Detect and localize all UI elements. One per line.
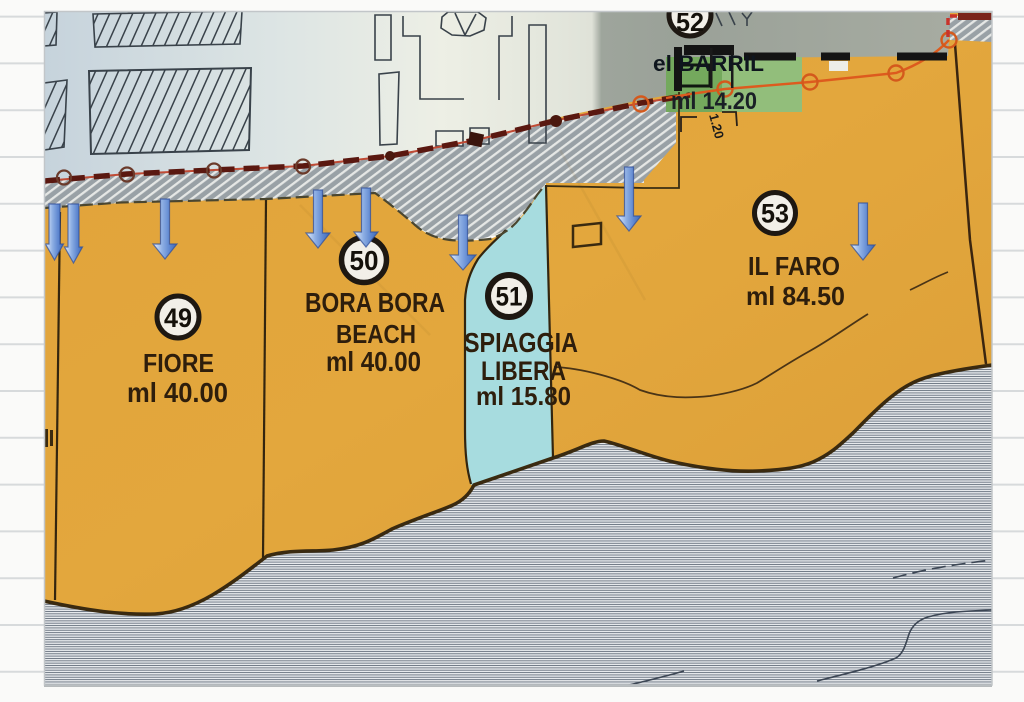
svg-text:IL FARO: IL FARO xyxy=(748,251,840,281)
svg-text:ml 40.00: ml 40.00 xyxy=(326,346,421,377)
svg-text:51: 51 xyxy=(496,282,523,312)
svg-text:BORA BORA: BORA BORA xyxy=(305,287,445,318)
svg-text:ml 84.50: ml 84.50 xyxy=(746,281,845,311)
svg-text:53: 53 xyxy=(761,199,789,229)
svg-text:49: 49 xyxy=(164,303,192,333)
svg-text:SPIAGGIA: SPIAGGIA xyxy=(464,327,578,358)
svg-text:BEACH: BEACH xyxy=(336,319,416,349)
svg-text:ml 14.20: ml 14.20 xyxy=(671,88,757,115)
svg-text:ml 40.00: ml 40.00 xyxy=(127,377,228,408)
svg-text:FIORE: FIORE xyxy=(143,348,214,378)
svg-text:ml 15.80: ml 15.80 xyxy=(476,381,571,411)
svg-text:50: 50 xyxy=(350,245,379,276)
svg-text:el BARRIL: el BARRIL xyxy=(653,51,764,76)
